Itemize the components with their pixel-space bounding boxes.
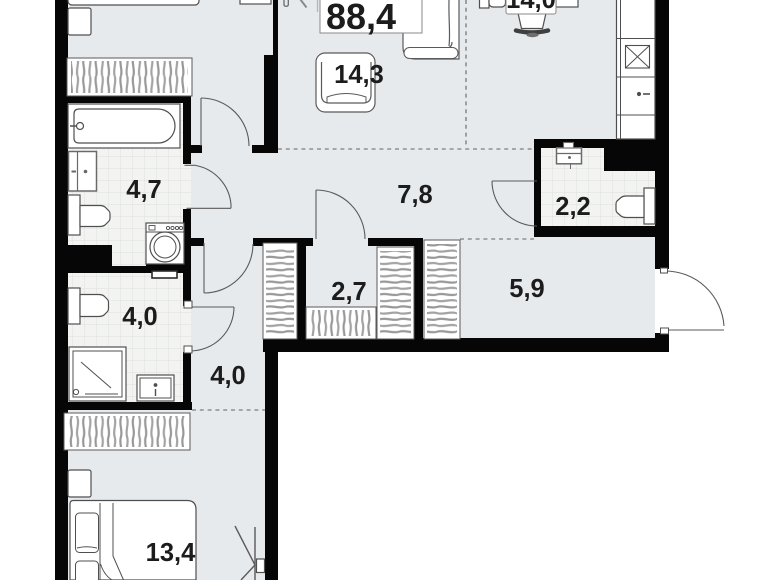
svg-text:2,2: 2,2 — [555, 193, 590, 221]
svg-text:13,4: 13,4 — [146, 539, 196, 567]
svg-text:88,4: 88,4 — [326, 0, 396, 37]
svg-text:4,0: 4,0 — [122, 303, 157, 331]
svg-text:2,7: 2,7 — [331, 278, 366, 306]
svg-text:4,0: 4,0 — [210, 362, 245, 390]
svg-text:5,9: 5,9 — [509, 275, 544, 303]
svg-text:4,7: 4,7 — [126, 176, 161, 204]
svg-text:14,3: 14,3 — [334, 61, 384, 89]
svg-text:14,0: 14,0 — [506, 0, 556, 14]
svg-text:7,8: 7,8 — [397, 181, 432, 209]
